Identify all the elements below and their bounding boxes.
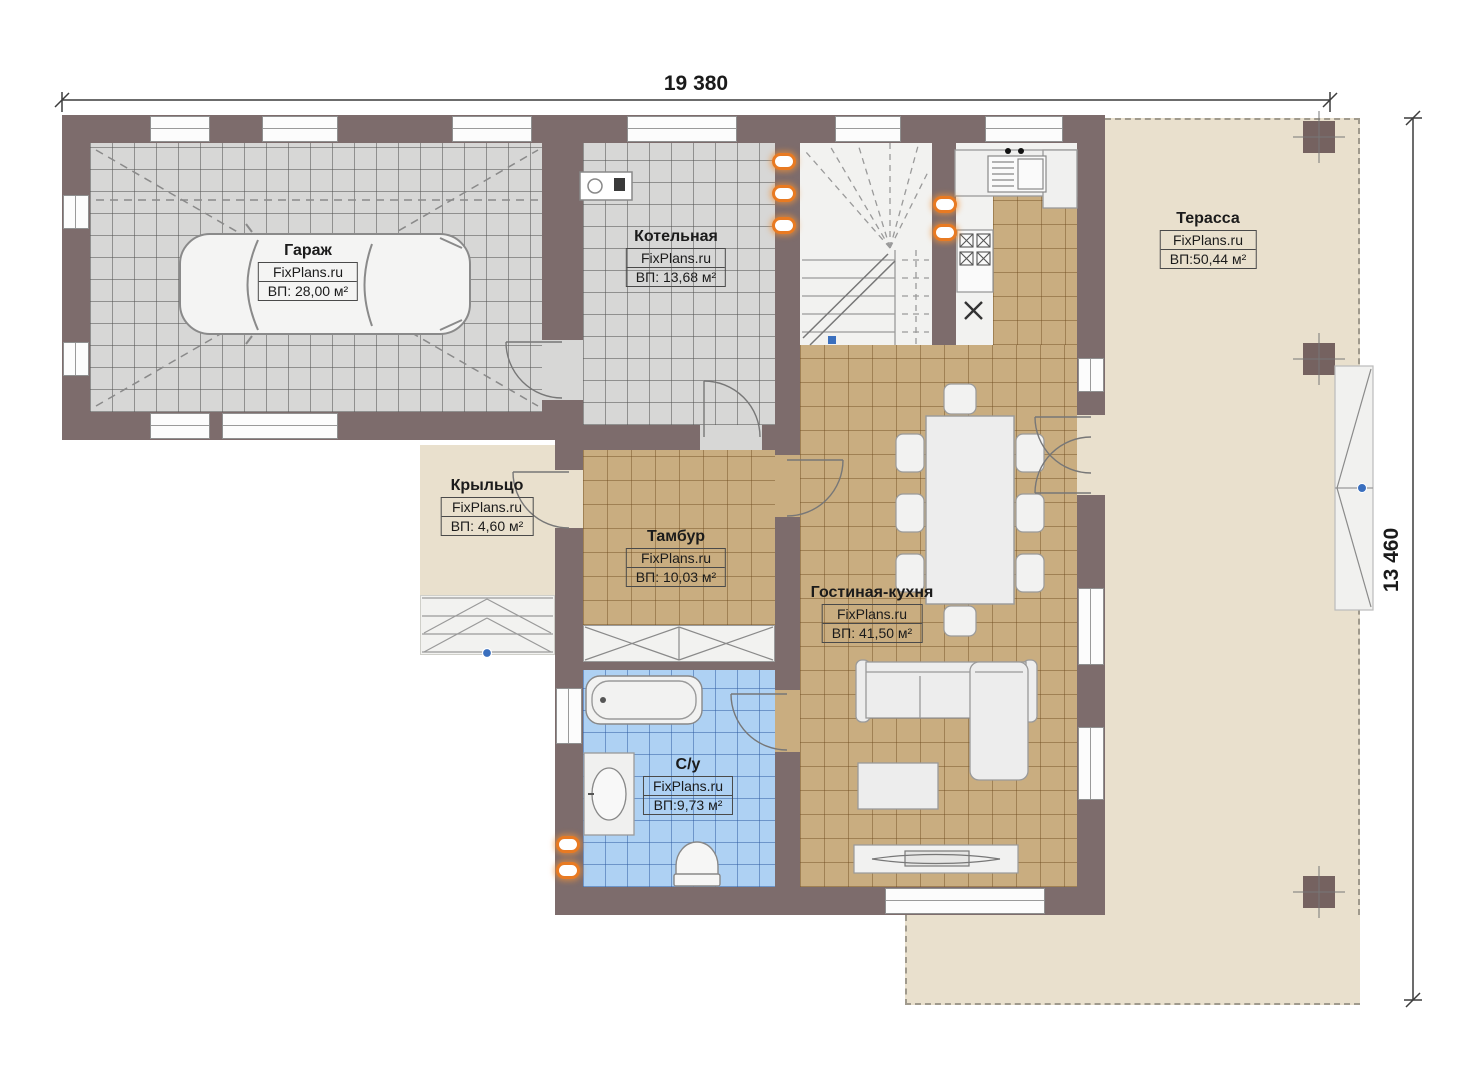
terrace-column-bottom xyxy=(1303,876,1335,908)
porch-steps-floor xyxy=(420,595,555,655)
dimension-width-label: 19 380 xyxy=(664,72,728,95)
room-label-garage: Гараж FixPlans.ru ВП: 28,00 м² xyxy=(258,242,358,301)
window xyxy=(985,116,1063,142)
door-opening-terrace xyxy=(1077,415,1105,495)
room-label-living-kitchen: Гостиная-кухня FixPlans.ru ВП: 41,50 м² xyxy=(811,584,934,643)
room-label-box: FixPlans.ru ВП: 41,50 м² xyxy=(822,604,922,643)
room-name: Терасса xyxy=(1160,210,1257,228)
window xyxy=(1078,727,1104,800)
room-label-boiler: Котельная FixPlans.ru ВП: 13,68 м² xyxy=(626,228,726,287)
window xyxy=(150,116,210,142)
room-label-box: FixPlans.ru ВП:50,44 м² xyxy=(1160,230,1257,269)
window xyxy=(262,116,338,142)
room-name: С/у xyxy=(643,756,733,774)
dimension-width xyxy=(55,92,1337,112)
room-name: Крыльцо xyxy=(441,477,534,495)
area-text: ВП:9,73 м² xyxy=(644,795,732,814)
brand-text: FixPlans.ru xyxy=(627,549,725,567)
dimension-height-label: 13 460 xyxy=(1380,528,1403,592)
area-text: ВП:50,44 м² xyxy=(1161,249,1256,268)
window xyxy=(452,116,532,142)
radiator xyxy=(933,224,957,241)
door-opening-bathroom xyxy=(775,690,800,752)
closet-floor xyxy=(583,625,775,662)
room-label-porch: Крыльцо FixPlans.ru ВП: 4,60 м² xyxy=(441,477,534,536)
wall-boiler-vestibule xyxy=(555,425,800,450)
window xyxy=(835,116,901,142)
area-text: ВП: 10,03 м² xyxy=(627,567,725,586)
door-opening-vestibule-living xyxy=(775,455,800,517)
room-label-box: FixPlans.ru ВП: 28,00 м² xyxy=(258,262,358,301)
radiator xyxy=(556,862,580,879)
window xyxy=(556,688,582,744)
room-label-box: FixPlans.ru ВП: 10,03 м² xyxy=(626,548,726,587)
area-text: ВП: 41,50 м² xyxy=(823,623,921,642)
terrace-floor-extension xyxy=(905,915,1360,1005)
room-label-bathroom: С/у FixPlans.ru ВП:9,73 м² xyxy=(643,756,733,815)
window xyxy=(222,413,338,439)
room-label-box: FixPlans.ru ВП: 4,60 м² xyxy=(441,497,534,536)
window xyxy=(1078,588,1104,665)
brand-text: FixPlans.ru xyxy=(442,498,533,516)
window xyxy=(627,116,737,142)
room-label-terrace: Терасса FixPlans.ru ВП:50,44 м² xyxy=(1160,210,1257,269)
room-label-vestibule: Тамбур FixPlans.ru ВП: 10,03 м² xyxy=(626,528,726,587)
terrace-column-mid xyxy=(1303,343,1335,375)
radiator xyxy=(772,185,796,202)
terrace-column-top xyxy=(1303,121,1335,153)
window xyxy=(150,413,210,439)
room-name: Тамбур xyxy=(626,528,726,546)
kitchen-floor xyxy=(993,196,1077,345)
brand-text: FixPlans.ru xyxy=(644,777,732,795)
area-text: ВП: 4,60 м² xyxy=(442,516,533,535)
window xyxy=(63,195,89,229)
room-name: Котельная xyxy=(626,228,726,246)
wall-bathroom-top xyxy=(583,662,775,670)
room-label-box: FixPlans.ru ВП:9,73 м² xyxy=(643,776,733,815)
door-opening-entrance xyxy=(555,470,583,528)
room-name: Гостиная-кухня xyxy=(811,584,934,602)
brand-text: FixPlans.ru xyxy=(823,605,921,623)
door-opening-boiler-vestibule xyxy=(700,425,762,450)
brand-text: FixPlans.ru xyxy=(1161,231,1256,249)
window xyxy=(63,342,89,376)
radiator xyxy=(933,196,957,213)
radiator xyxy=(772,217,796,234)
radiator xyxy=(772,153,796,170)
room-label-box: FixPlans.ru ВП: 13,68 м² xyxy=(626,248,726,287)
window xyxy=(885,888,1045,914)
window xyxy=(1078,358,1104,392)
wall-garage-left xyxy=(62,115,90,440)
dimension-height xyxy=(1404,111,1422,1007)
area-text: ВП: 13,68 м² xyxy=(627,267,725,286)
floor-plan: 19 380 13 460 xyxy=(0,0,1474,1080)
brand-text: FixPlans.ru xyxy=(259,263,357,281)
brand-text: FixPlans.ru xyxy=(627,249,725,267)
area-text: ВП: 28,00 м² xyxy=(259,281,357,300)
room-name: Гараж xyxy=(258,242,358,260)
radiator xyxy=(556,836,580,853)
wall-stair-kitchen-pillar xyxy=(932,143,956,345)
door-opening-garage-boiler xyxy=(542,340,583,400)
